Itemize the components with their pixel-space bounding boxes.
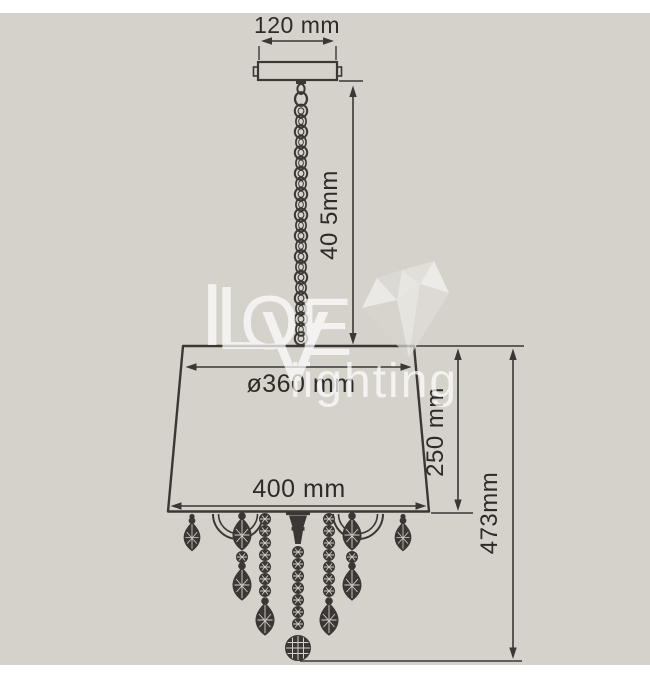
total-height-label: 473mm xyxy=(476,472,503,555)
watermark-word: lighting xyxy=(290,355,458,408)
canopy-width-label: 120 mm xyxy=(254,12,340,38)
chain-drop-label: 40 5mm xyxy=(316,170,343,260)
shade-bottom-width-label: 400 mm xyxy=(252,475,345,503)
chandelier-dimension-diagram: 120 mm 40 5mm ø360 mm 400 mm 250 mm 473m… xyxy=(0,0,650,677)
